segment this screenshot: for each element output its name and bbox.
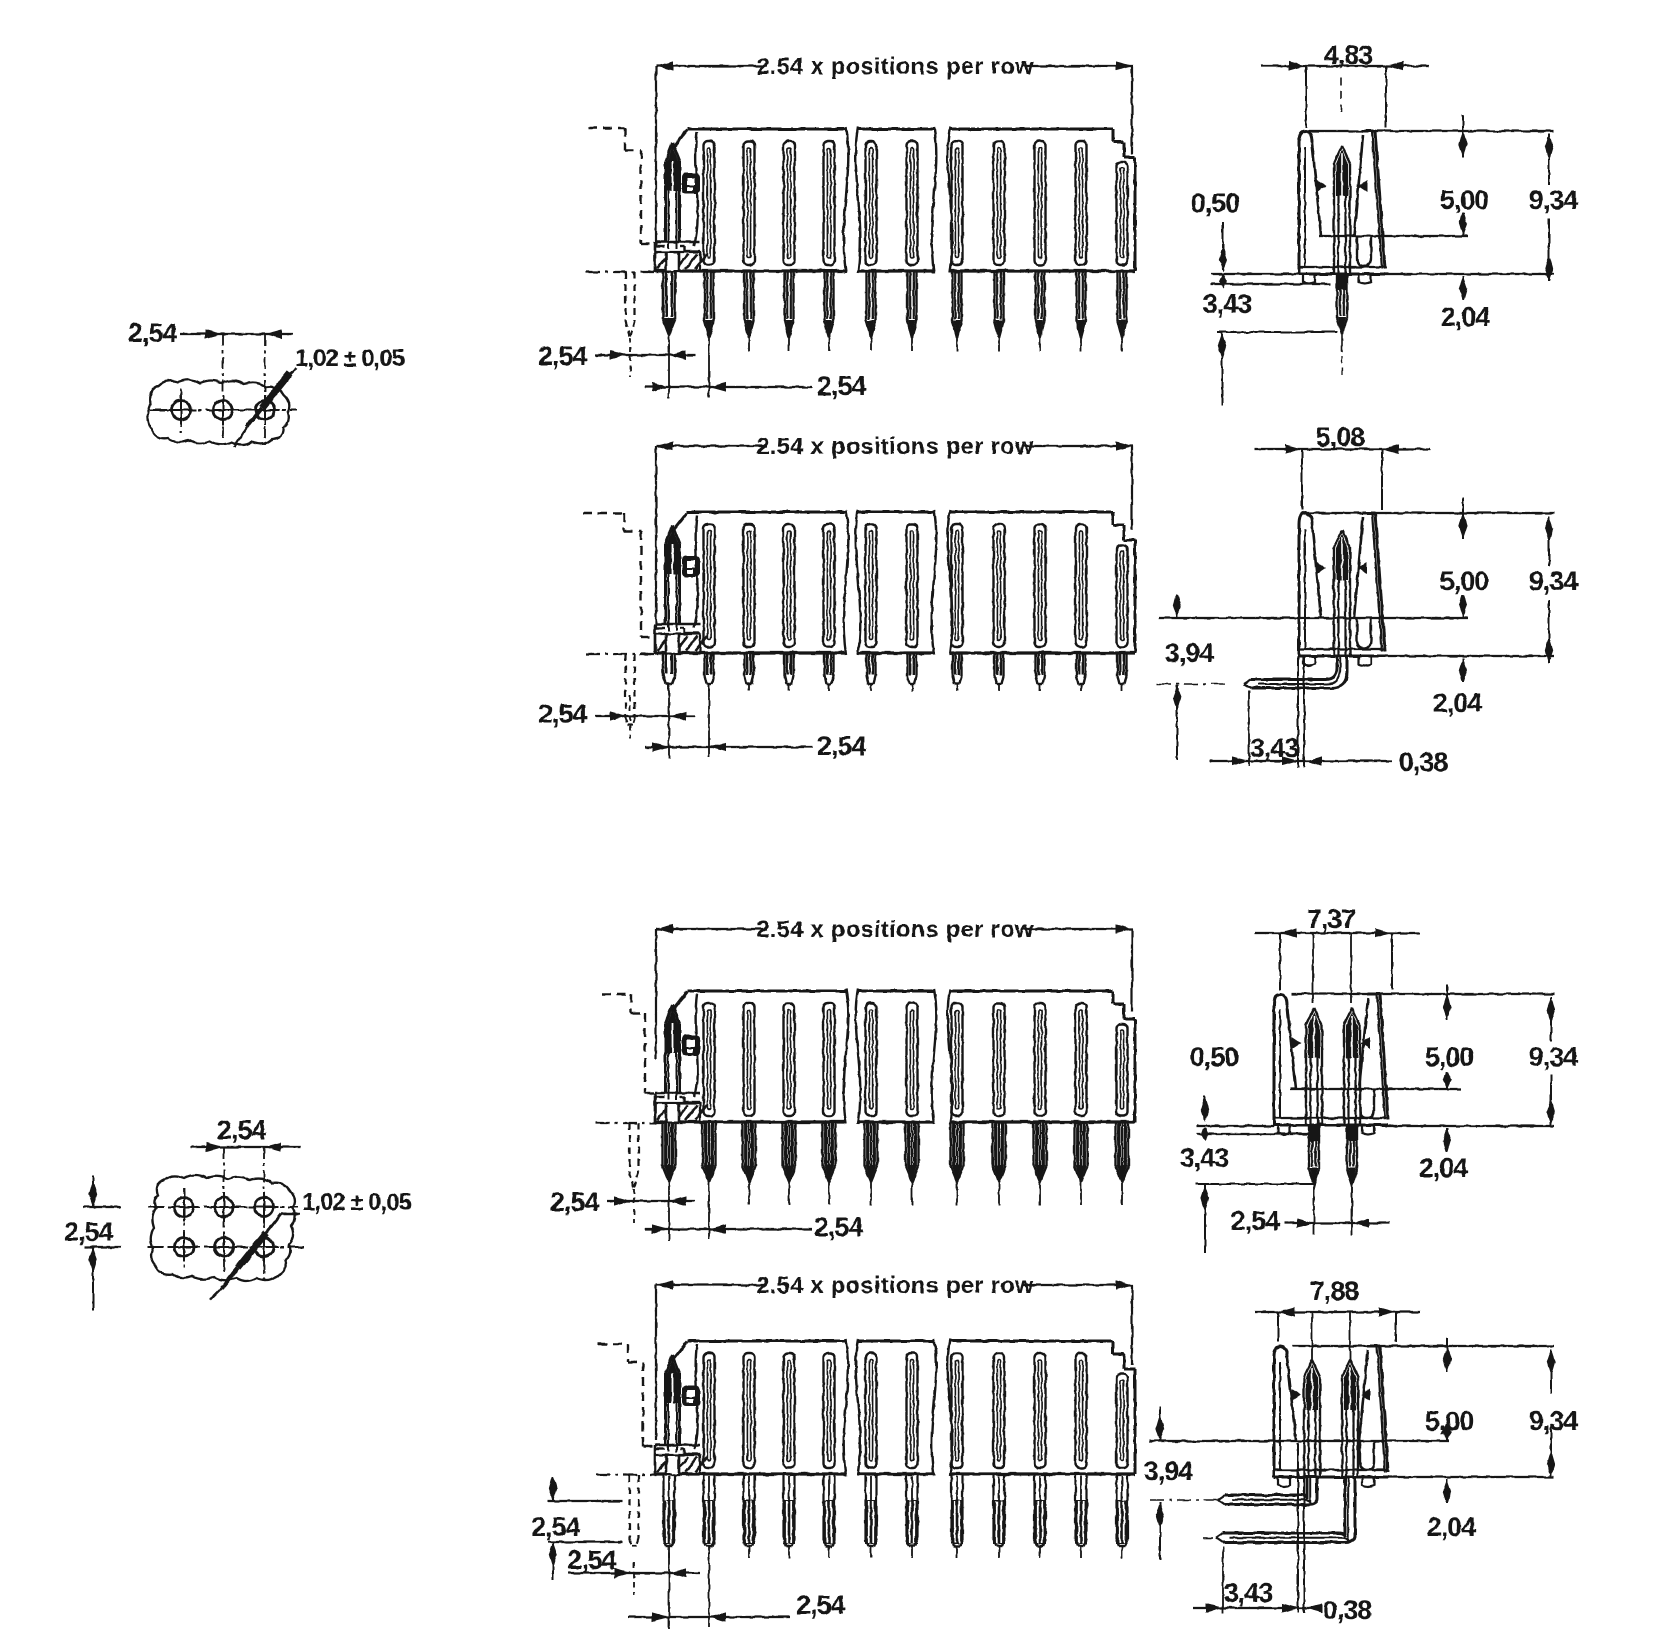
svg-text:2,04: 2,04 <box>1441 302 1491 332</box>
svg-text:2,54: 2,54 <box>796 1590 846 1620</box>
svg-text:2.54 x positions per row: 2.54 x positions per row <box>756 1272 1034 1298</box>
svg-text:0,50: 0,50 <box>1191 188 1240 218</box>
svg-text:2,54: 2,54 <box>128 318 178 348</box>
svg-text:5,08: 5,08 <box>1316 422 1366 452</box>
svg-text:2,04: 2,04 <box>1427 1512 1477 1542</box>
svg-text:3,94: 3,94 <box>1144 1456 1194 1486</box>
svg-text:3,43: 3,43 <box>1203 289 1253 319</box>
svg-text:0,50: 0,50 <box>1190 1042 1239 1072</box>
svg-text:2,54: 2,54 <box>814 1212 864 1242</box>
svg-text:3,43: 3,43 <box>1180 1143 1230 1173</box>
svg-text:0,38: 0,38 <box>1399 747 1449 777</box>
svg-text:2,04: 2,04 <box>1433 688 1483 718</box>
svg-text:2,54: 2,54 <box>817 731 867 761</box>
svg-text:3,94: 3,94 <box>1165 638 1215 668</box>
svg-text:2,54: 2,54 <box>550 1187 600 1217</box>
svg-text:3,43: 3,43 <box>1250 733 1300 763</box>
svg-text:1,02 ± 0,05: 1,02 ± 0,05 <box>302 1189 412 1216</box>
svg-text:2,54: 2,54 <box>538 699 588 729</box>
svg-text:2,04: 2,04 <box>1419 1153 1469 1183</box>
svg-text:2.54 x positions per row: 2.54 x positions per row <box>756 53 1034 79</box>
svg-text:2,54: 2,54 <box>64 1217 114 1247</box>
svg-text:9,34: 9,34 <box>1529 566 1579 596</box>
svg-text:2,54: 2,54 <box>217 1115 267 1145</box>
svg-text:5,00: 5,00 <box>1440 185 1489 215</box>
svg-text:9,34: 9,34 <box>1529 1406 1579 1436</box>
svg-text:2,54: 2,54 <box>538 341 588 371</box>
svg-text:0,38: 0,38 <box>1323 1595 1373 1625</box>
svg-text:2,54: 2,54 <box>567 1545 617 1575</box>
svg-text:5,00: 5,00 <box>1440 566 1489 596</box>
svg-text:9,34: 9,34 <box>1529 185 1579 215</box>
svg-text:2.54 x positions per row: 2.54 x positions per row <box>756 433 1034 459</box>
svg-text:1,02 ± 0,05: 1,02 ± 0,05 <box>295 345 405 372</box>
svg-text:2,54: 2,54 <box>817 371 867 401</box>
svg-text:2,54: 2,54 <box>531 1512 581 1542</box>
svg-text:2,54: 2,54 <box>1231 1206 1281 1236</box>
svg-text:9,34: 9,34 <box>1529 1042 1579 1072</box>
svg-text:2.54 x positions per row: 2.54 x positions per row <box>756 916 1034 942</box>
svg-text:5,00: 5,00 <box>1425 1042 1474 1072</box>
svg-text:3,43: 3,43 <box>1224 1578 1274 1608</box>
svg-text:7,37: 7,37 <box>1307 904 1356 934</box>
svg-text:7,88: 7,88 <box>1310 1276 1360 1306</box>
